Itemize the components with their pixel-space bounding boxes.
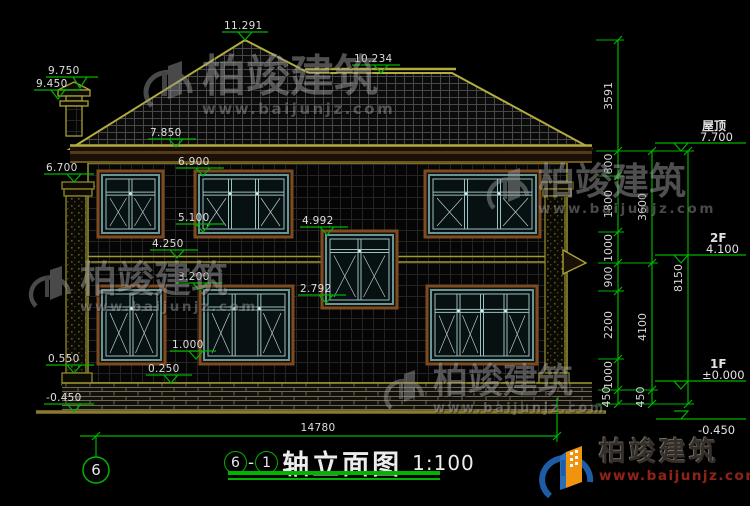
window-hardware-dot <box>129 192 132 195</box>
brand-url-text: www.baijunjz.com <box>599 468 750 484</box>
drawing-title: 6 - 1 轴立面图 1:100 <box>224 443 475 482</box>
window-sash-frame <box>204 290 289 360</box>
dim-label: 900 <box>602 267 615 288</box>
level-marker: 11.291 <box>222 20 268 40</box>
window-hardware-dot <box>504 310 507 313</box>
f2-level-marker: 2F 4.100 <box>655 231 746 263</box>
level-marker: 6.700 <box>44 162 94 182</box>
brand-name-text: 柏竣建筑 <box>599 438 750 468</box>
window-hardware-dot <box>130 307 133 310</box>
dimension-chains-right: 3591 800 1800 1000 900 2200 1000 450 360… <box>596 36 694 408</box>
window-hardware-dot <box>481 310 484 313</box>
marker-label: 2.792 <box>300 283 332 295</box>
roof-level-value: 7.700 <box>700 130 733 144</box>
window-sash-frame <box>102 290 161 360</box>
side-canopy <box>563 250 586 274</box>
marker-label: 4.992 <box>302 215 334 227</box>
marker-label: 5.100 <box>178 212 210 224</box>
ground-level-marker: -0.450 <box>656 411 746 437</box>
dim-label: 1000 <box>602 234 615 262</box>
marker-label: -0.450 <box>46 392 82 404</box>
dim-label: 4100 <box>636 313 649 341</box>
window-sash-frame <box>102 175 159 233</box>
marker-label: 6.900 <box>178 156 210 168</box>
brand-logo-icon <box>536 438 594 502</box>
dim-label: 2200 <box>602 311 615 339</box>
dim-label: 3591 <box>602 82 615 110</box>
marker-label: 0.550 <box>48 353 80 365</box>
window-hardware-dot <box>232 307 235 310</box>
cad-elevation-drawing: 11.291 10.234 9.750 9.450 7.850 6.900 6.… <box>0 0 750 506</box>
dim-label: 8150 <box>672 264 685 292</box>
roof-face <box>70 40 592 149</box>
dim-label: 1000 <box>602 361 615 389</box>
marker-label: 10.234 <box>354 53 393 65</box>
marker-label: 9.750 <box>48 65 80 77</box>
marker-label: 3.200 <box>178 271 210 283</box>
dim-label: 3600 <box>636 193 649 221</box>
window-hardware-dot <box>256 192 259 195</box>
window-hardware-dot <box>457 310 460 313</box>
title-underline-thin <box>228 478 440 480</box>
title-underline-thick <box>228 471 440 475</box>
roof-level-marker: 屋顶 7.700 <box>655 119 746 151</box>
plinth-brick <box>62 383 592 412</box>
window-hardware-dot <box>498 192 501 195</box>
window-hardware-dot <box>465 192 468 195</box>
dim-label: 800 <box>602 154 615 175</box>
f2-level-value: 4.100 <box>706 242 739 256</box>
dim-label: 1800 <box>602 190 615 218</box>
elevation-svg: 11.291 10.234 9.750 9.450 7.850 6.900 6.… <box>0 0 750 506</box>
overall-width-dim: 14780 <box>301 422 336 434</box>
brand-logo: 柏竣建筑 www.baijunjz.com <box>536 438 750 502</box>
window-hardware-dot <box>358 250 361 253</box>
window-hardware-dot <box>229 192 232 195</box>
axis-separator: - <box>248 453 254 473</box>
marker-label: 6.700 <box>46 162 78 174</box>
marker-label: 0.250 <box>148 363 180 375</box>
marker-label: 11.291 <box>224 20 263 32</box>
marker-label: 4.250 <box>152 238 184 250</box>
marker-label: 1.000 <box>172 339 204 351</box>
f1-level-marker: 1F ±0.000 <box>655 357 746 389</box>
marker-label: 9.450 <box>36 78 68 90</box>
window-hardware-dot <box>258 307 261 310</box>
dim-label: 450 <box>634 387 647 408</box>
window-sash-frame <box>429 175 536 233</box>
ground-level-value: -0.450 <box>698 423 735 437</box>
dim-label: 450 <box>600 387 613 408</box>
window-sash-frame <box>431 290 533 360</box>
level-markers-right: 屋顶 7.700 2F 4.100 1F ±0.000 -0.450 <box>655 119 746 437</box>
title-text: 轴立面图 <box>282 443 402 482</box>
f1-level-value: ±0.000 <box>702 368 745 382</box>
marker-label: 7.850 <box>150 127 182 139</box>
axis-bubble-number: 6 <box>91 461 101 479</box>
